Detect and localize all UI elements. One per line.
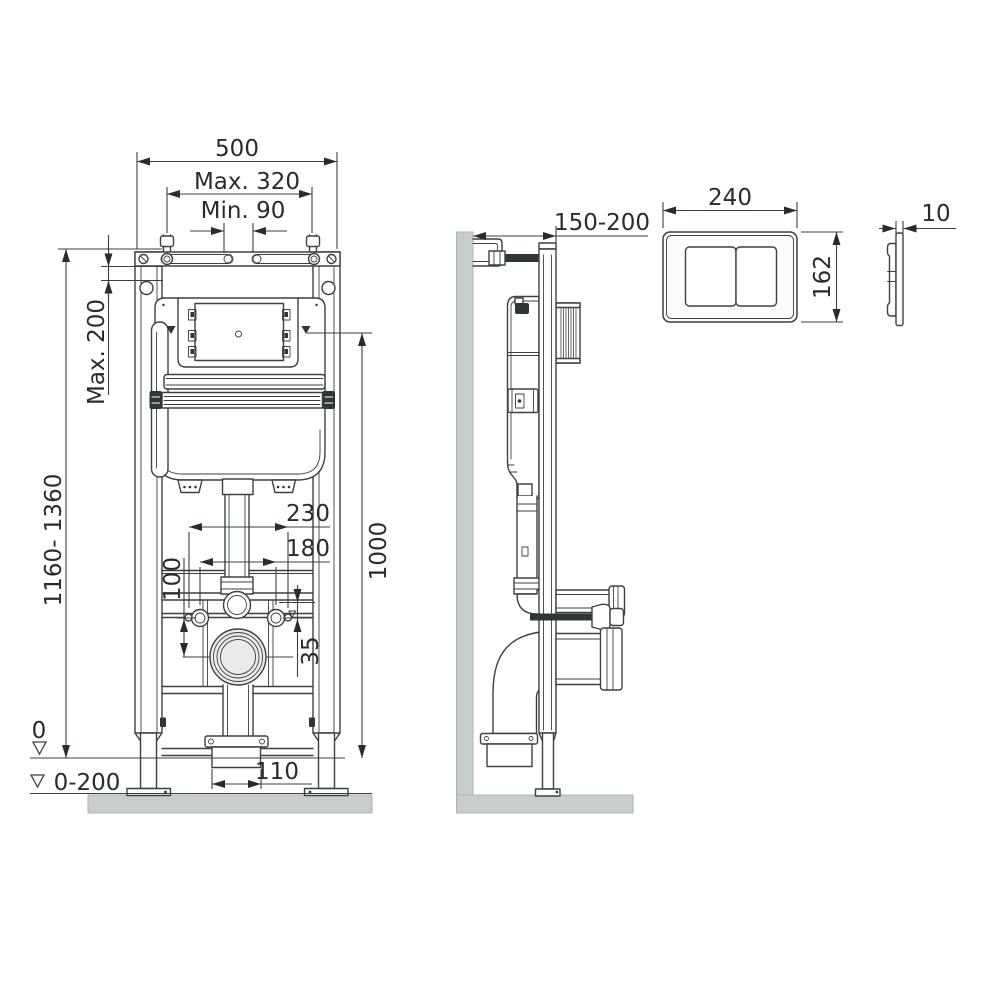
flush-plate-front-view: 240 162 xyxy=(663,185,843,322)
datum-icon xyxy=(31,775,44,787)
dim-fixing-max: Max. 320 xyxy=(194,169,300,195)
dim-floor-level: 0 xyxy=(32,718,47,744)
fixing-bolt-icon xyxy=(268,610,285,627)
plate-face-side xyxy=(896,233,903,326)
frame-rail-side xyxy=(536,243,561,796)
drain-outlet-pipe xyxy=(556,634,601,685)
flush-button-large xyxy=(686,247,737,306)
top-crossbar xyxy=(135,235,340,266)
side-dimensions: 150-200 xyxy=(473,210,650,248)
flush-button-small xyxy=(736,247,777,306)
dim-drain-drop: 100 xyxy=(160,557,186,601)
plate-side-dimensions: 10 xyxy=(879,201,956,234)
wall-bracket xyxy=(473,239,539,266)
dim-wall-distance: 150-200 xyxy=(554,210,650,236)
threaded-rod-icon xyxy=(505,254,539,262)
wc-connections xyxy=(183,610,293,686)
floor-section xyxy=(457,795,634,813)
dim-height-range: 1160- 1360 xyxy=(41,474,67,607)
floor-section xyxy=(88,795,372,813)
cistern xyxy=(150,298,336,495)
dim-height-1000: 1000 xyxy=(366,522,392,581)
drawing-canvas: 500 Max. 320 Min. 90 Max. 200 1160- 1360 xyxy=(0,0,1000,1000)
dim-plate-width: 240 xyxy=(708,185,752,211)
side-view: 150-200 xyxy=(457,210,651,813)
dim-span-outer: 230 xyxy=(286,501,330,527)
dim-plate-height: 162 xyxy=(810,255,836,299)
dim-span-inner: 180 xyxy=(286,536,330,562)
dim-floor-adjust: 0-200 xyxy=(54,770,121,796)
dim-bolt-offset: 35 xyxy=(298,636,324,665)
drain-socket xyxy=(210,629,266,685)
dim-frame-width: 500 xyxy=(215,136,259,162)
inlet-valve-icon xyxy=(515,303,529,314)
dim-plate-thickness: 10 xyxy=(921,201,950,227)
dim-fixing-min: Min. 90 xyxy=(201,198,286,224)
outlet-bracket xyxy=(205,736,268,747)
flush-plate-side-view: 10 xyxy=(879,201,956,326)
inlet-protection-box xyxy=(556,303,580,363)
dim-outlet-width: 110 xyxy=(255,759,299,785)
fixing-stud-icon xyxy=(530,614,592,621)
flush-pipe xyxy=(221,494,253,619)
wall-section xyxy=(457,232,474,796)
plate-body-side xyxy=(888,244,897,317)
installation-drawing: 500 Max. 320 Min. 90 Max. 200 1160- 1360 xyxy=(0,0,1000,1000)
front-view: 500 Max. 320 Min. 90 Max. 200 1160- 1360 xyxy=(30,136,392,813)
drain-downpipe xyxy=(205,685,268,768)
dim-top-offset-max: Max. 200 xyxy=(84,299,110,405)
